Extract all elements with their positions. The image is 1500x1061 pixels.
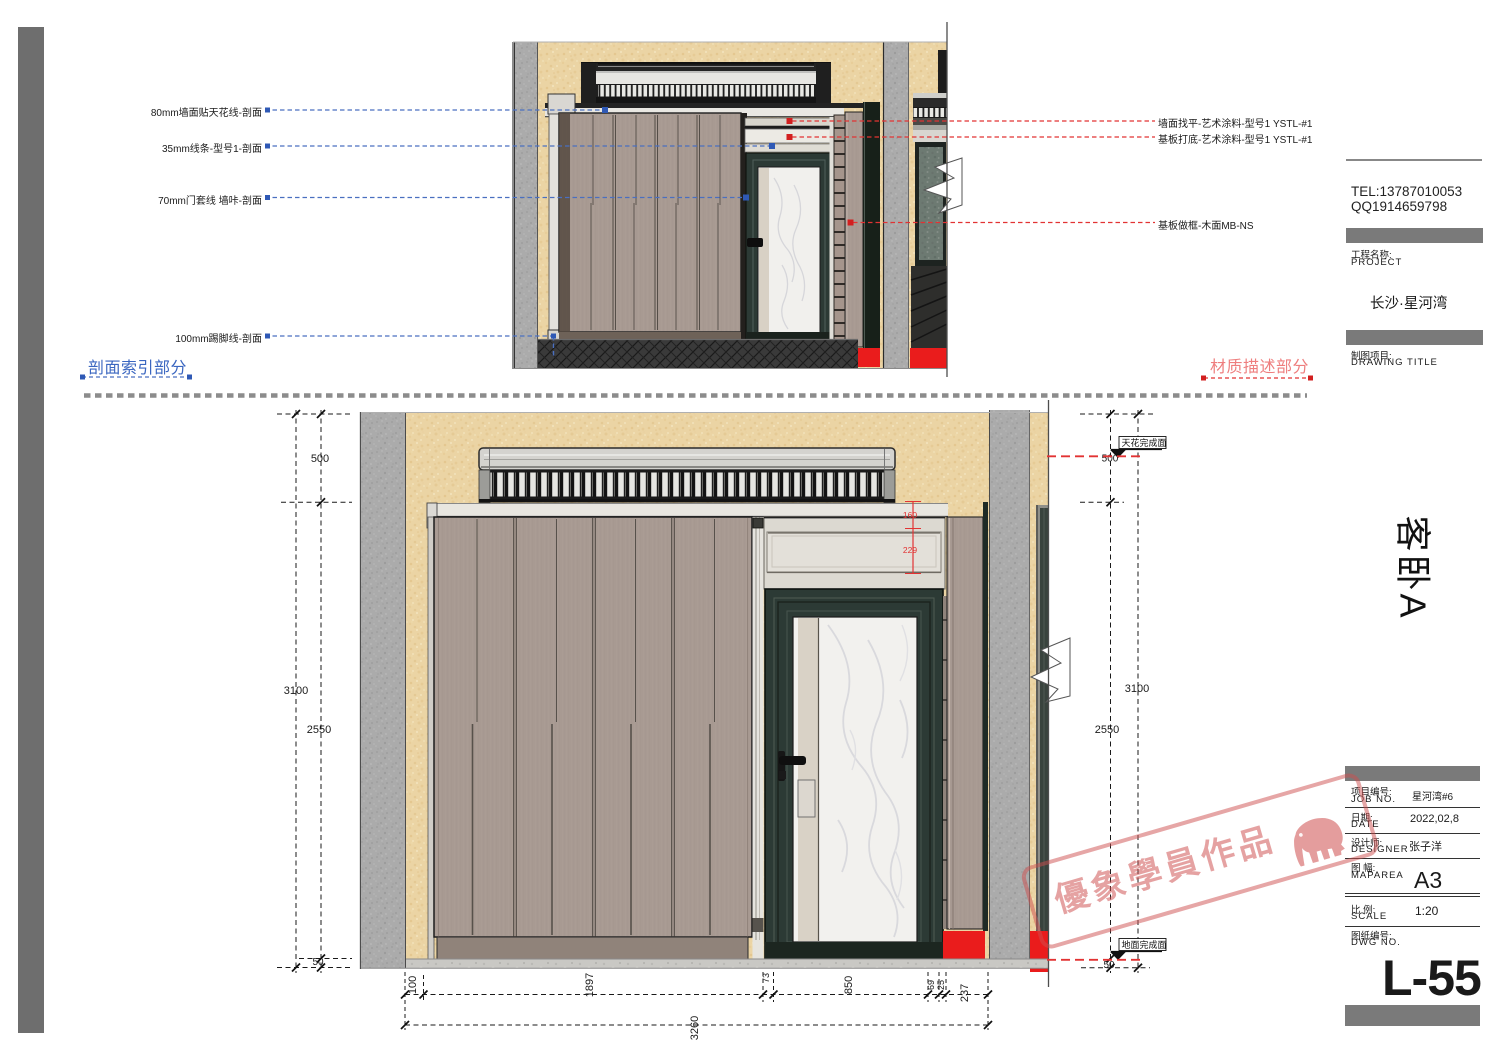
svg-text:3100: 3100 [1125,683,1149,695]
svg-text:160: 160 [903,510,917,520]
svg-text:100: 100 [407,976,419,994]
svg-text:2550: 2550 [1095,724,1119,736]
svg-text:3100: 3100 [284,685,308,697]
svg-text:地面完成面: 地面完成面 [1122,939,1167,950]
svg-text:850: 850 [843,976,855,994]
svg-text:73: 73 [761,973,771,983]
svg-text:天花完成面: 天花完成面 [1122,437,1167,448]
svg-text:69: 69 [926,980,936,990]
svg-text:2550: 2550 [307,724,331,736]
svg-text:50: 50 [1103,960,1115,971]
svg-text:500: 500 [311,453,329,465]
svg-text:3260: 3260 [689,1016,701,1040]
svg-text:229: 229 [903,545,917,555]
svg-text:1897: 1897 [584,973,596,997]
svg-text:50: 50 [312,957,324,968]
svg-text:25: 25 [936,980,946,990]
svg-text:237: 237 [959,984,971,1002]
